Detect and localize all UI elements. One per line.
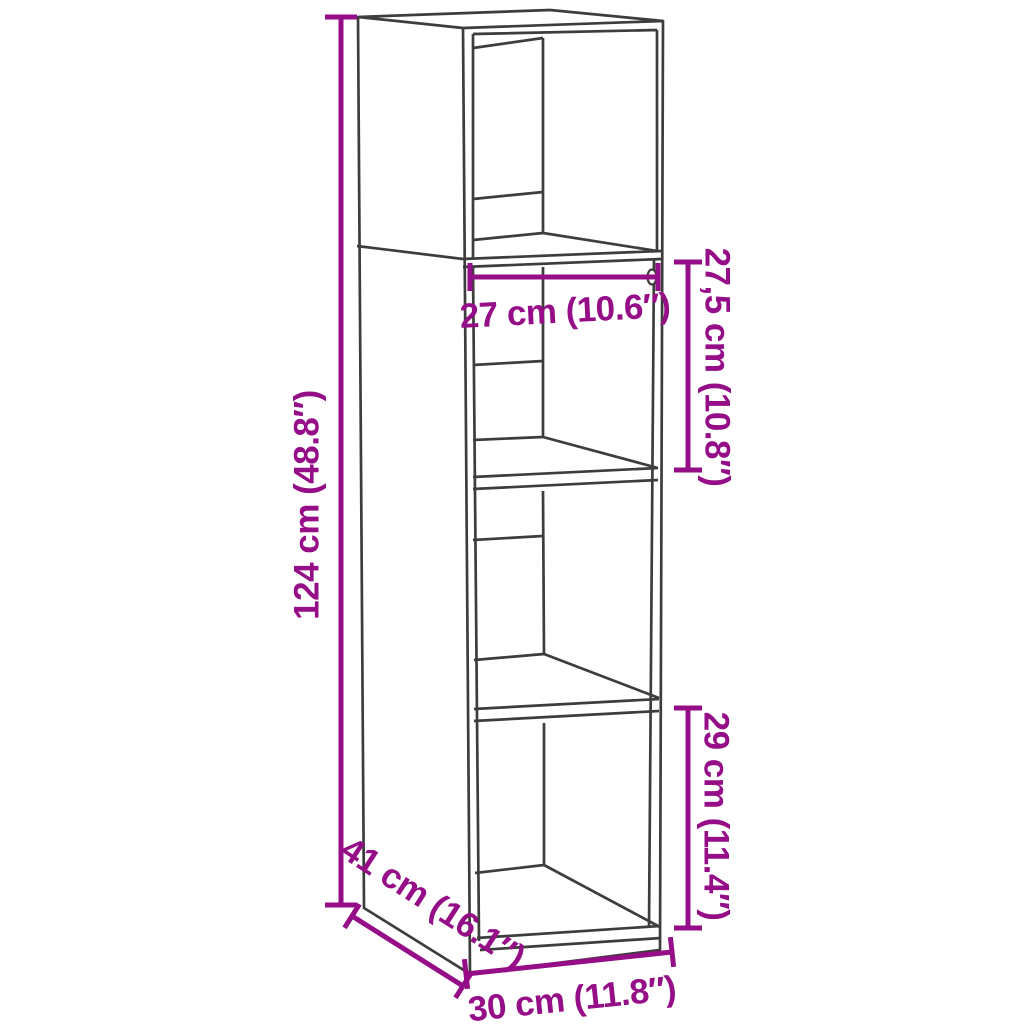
opening-width-dimension: 27 cm (10.6″) <box>459 263 671 336</box>
shelf-compartment-2 <box>473 491 659 721</box>
height-dimension: 124 cm (48.8″) <box>288 17 358 905</box>
cabinet-outer-outline <box>358 10 663 974</box>
upper-compartment-dimension: 27,5 cm (10.8″) <box>674 248 737 487</box>
height-dimension-line <box>325 17 357 905</box>
shelf-compartment-3 <box>475 723 661 950</box>
top-cabinet-front-frame <box>473 30 657 259</box>
lower-compartment-dimension-label: 29 cm (11.4″) <box>697 712 736 921</box>
shelf-unit-front-frame <box>473 259 654 941</box>
cabinet-module-seam <box>357 246 661 267</box>
top-cabinet-interior <box>473 38 657 251</box>
width-dimension-label: 30 cm (11.8″) <box>466 969 678 1024</box>
cabinet-line-art <box>357 10 663 974</box>
lower-compartment-dimension: 29 cm (11.4″) <box>674 708 736 928</box>
height-dimension-label: 124 cm (48.8″) <box>288 390 327 620</box>
opening-width-dimension-line <box>470 263 658 291</box>
opening-width-dimension-label: 27 cm (10.6″) <box>459 286 671 336</box>
upper-compartment-dimension-label: 27,5 cm (10.8″) <box>698 248 737 487</box>
furniture-dimension-diagram: 124 cm (48.8″) 27 cm (10.6″) 27,5 cm (10… <box>0 0 1024 1024</box>
diagram-canvas: 124 cm (48.8″) 27 cm (10.6″) 27,5 cm (10… <box>0 0 1024 1024</box>
